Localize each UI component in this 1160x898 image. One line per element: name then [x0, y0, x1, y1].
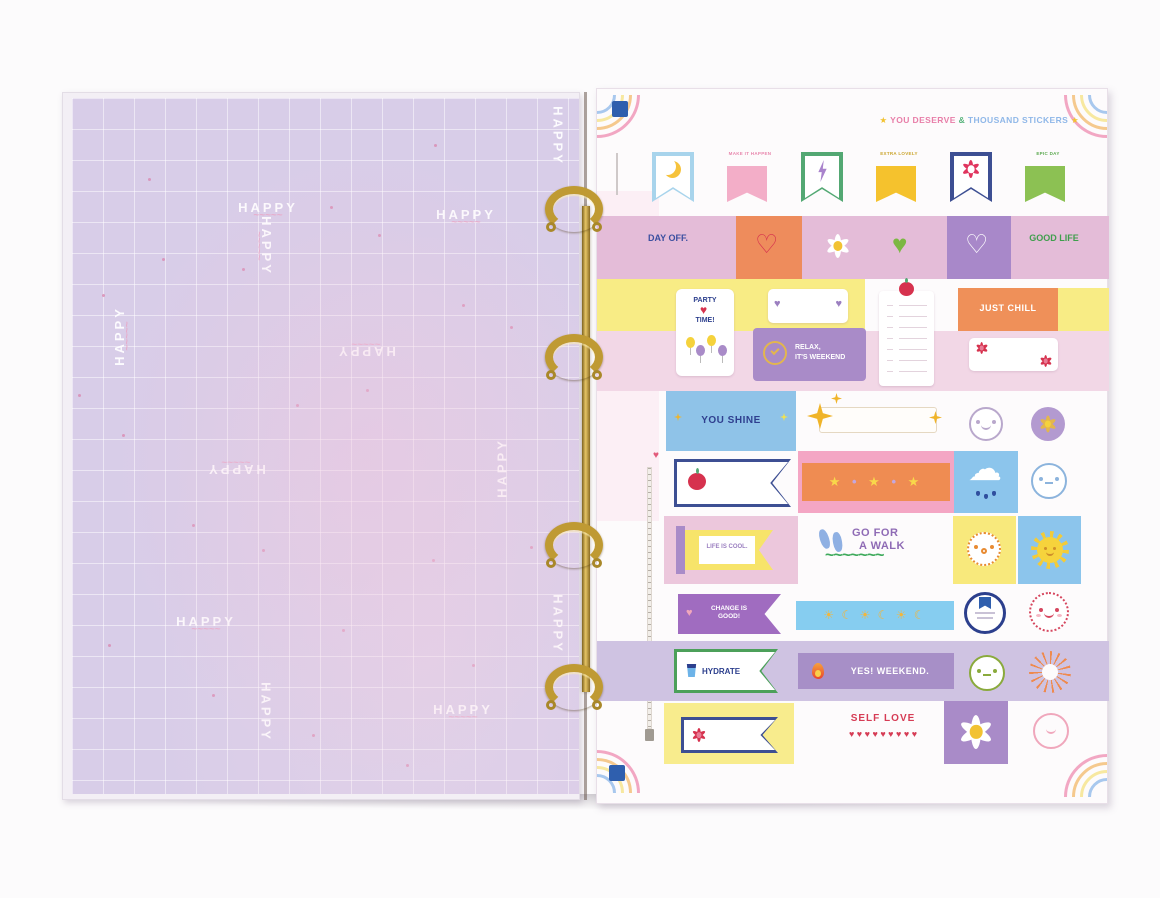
- label-box: LIFE IS COOL.: [699, 536, 755, 564]
- happy-word: HAPPY~~~~~: [113, 306, 131, 366]
- orange-square-sticker: ♡: [736, 216, 802, 279]
- purple-flower-circle-sticker: [1031, 407, 1065, 441]
- flag-sticker-lightning: [801, 152, 843, 202]
- heart-icon: ♥: [700, 304, 707, 316]
- small-heart-icon: ♥: [653, 451, 659, 461]
- dot-icon: •: [852, 474, 861, 489]
- happy-word: HAPPY~~~~~: [433, 703, 493, 721]
- todo-checkboxes: [887, 305, 893, 379]
- row2-band: [597, 216, 1109, 279]
- happy-word: HAPPY~~~~~: [238, 201, 298, 219]
- go-for-a-walk-text: GO FOR: [852, 527, 898, 539]
- you-shine-sticker: YOU SHINE: [666, 391, 796, 451]
- rainbow-corner-bottom-right-icon: [1053, 743, 1107, 797]
- todo-list-sticker: [879, 291, 934, 386]
- green-wave-icon: ~~~~~~~: [825, 547, 883, 565]
- surprised-smiley-icon: [967, 532, 1001, 566]
- pink-dot: [102, 294, 105, 297]
- pink-dot: [406, 764, 409, 767]
- binder-ring: [545, 186, 603, 232]
- gold-flower-icon: [1040, 415, 1055, 432]
- balloon-icon: [707, 335, 716, 346]
- self-love-text: SELF LOVE: [823, 713, 943, 724]
- flag-sticker-flower: [950, 152, 992, 202]
- heart-outline-icon: ♡: [965, 231, 988, 257]
- starburst-icon: [1029, 651, 1071, 693]
- wavy-underline: ~~~~~: [436, 220, 496, 226]
- happy-word: HAPPY: [496, 438, 509, 498]
- pink-dot: [192, 524, 195, 527]
- daisy-icon: [961, 715, 991, 749]
- life-is-cool-flag-sticker: LIFE IS COOL.: [685, 530, 773, 570]
- flag-sticker-yellow: [876, 166, 916, 202]
- happy-word: HAPPY: [552, 594, 565, 654]
- pink-dot: [432, 559, 435, 562]
- balloon-icon: [718, 345, 727, 356]
- dot-icon: •: [891, 474, 900, 489]
- flower-label-sticker: [969, 338, 1058, 371]
- flag-sticker-pink: [727, 166, 767, 202]
- wavy-underline: ~~~~~: [336, 340, 396, 346]
- flag-label: EXTRA LOVELY: [869, 151, 929, 156]
- day-off-sticker: DAY OFF.: [645, 233, 691, 243]
- row9-yellow-square: [664, 703, 794, 764]
- yes-weekend-sticker: YES! WEEKEND.: [798, 653, 954, 689]
- pink-dot: [148, 178, 151, 181]
- pink-smile-circle-sticker: [1033, 713, 1069, 749]
- pink-dot: [472, 664, 475, 667]
- balloon-icon: [686, 337, 695, 348]
- just-chill-sticker: JUST CHILL: [958, 288, 1058, 331]
- yellow-block: [1058, 288, 1109, 331]
- pink-dot: [162, 258, 165, 261]
- wavy-underline: ~~~~~: [206, 458, 266, 464]
- purple-bar: [676, 526, 685, 574]
- registration-square-top-icon: [612, 101, 628, 117]
- balloon-icon: [696, 345, 705, 356]
- daisy-icon: [827, 234, 849, 258]
- happy-word: HAPPY~~~~~: [176, 615, 236, 633]
- heart-label-sticker: ♥ ♥: [768, 289, 848, 323]
- flag-sticker-green: [1025, 166, 1065, 202]
- pink-dot: [78, 394, 81, 397]
- cloud-icon: ☁: [968, 455, 1002, 483]
- pink-dot: [378, 234, 381, 237]
- mini-flag-icon: [979, 597, 991, 609]
- binder-ring: [545, 664, 603, 710]
- badge-circle-sticker: [964, 592, 1006, 634]
- gold-spine-bar: [582, 206, 590, 692]
- heart-icon: ♥: [686, 608, 693, 619]
- happy-word: HAPPY~~~~~: [255, 216, 273, 276]
- gold-circle-check-icon: [763, 341, 787, 365]
- heart-icon: ♥: [835, 299, 842, 310]
- pink-dot: [366, 389, 369, 392]
- relax-weekend-sticker: RELAX, IT'S WEEKEND: [753, 328, 866, 381]
- heart-icon: ♥: [774, 299, 781, 310]
- pink-dot: [312, 734, 315, 737]
- smiley-sticker: [969, 407, 1003, 441]
- sparkle-label-sticker: [819, 407, 937, 433]
- pink-dot: [342, 629, 345, 632]
- star-dot-pattern: ★ • ★ • ★: [802, 474, 950, 490]
- pink-dot: [212, 694, 215, 697]
- pink-dot: [510, 326, 513, 329]
- sun-icon: [1031, 531, 1069, 569]
- sheet-header: ★ YOU DESERVE & THOUSAND STICKERS ★: [880, 115, 1079, 126]
- flag-sticker-moon: [652, 152, 694, 202]
- sun-moon-pattern: ☀ ☾ ☀ ☾ ☀ ☾: [796, 608, 954, 622]
- rain-cloud-sticker: ☁: [954, 451, 1018, 513]
- apple-icon: [899, 282, 914, 296]
- party-time-sticker: PARTY ♥ TIME!: [676, 289, 734, 376]
- sleepy-smiley-sticker: [1031, 463, 1067, 499]
- binder-ring: [545, 522, 603, 568]
- pink-dot: [262, 549, 265, 552]
- flower-icon: [963, 160, 979, 178]
- hydrate-sticker: HYDRATE: [674, 649, 778, 693]
- registration-square-bottom-icon: [609, 765, 625, 781]
- pink-dot: [296, 404, 299, 407]
- happy-word: HAPPY: [552, 106, 565, 166]
- flower-icon: [976, 342, 987, 354]
- left-grid-page: HAPPY~~~~~HAPPYHAPPY~~~~~HAPPY~~~~~HAPPY…: [62, 92, 580, 800]
- sun-moon-strip-sticker: ☀ ☾ ☀ ☾ ☀ ☾: [796, 601, 954, 630]
- happy-word: HAPPY~~~~~: [436, 208, 496, 226]
- lilac-grid-pattern: HAPPY~~~~~HAPPYHAPPY~~~~~HAPPY~~~~~HAPPY…: [72, 98, 579, 794]
- wavy-underline: ~~~~~: [125, 306, 131, 366]
- dot-icon: [900, 474, 908, 489]
- wavy-underline: ~~~~~: [238, 213, 298, 219]
- calm-smiley-sticker: [969, 655, 1005, 691]
- binder-ring: [545, 334, 603, 380]
- todo-lines: [899, 305, 927, 379]
- happy-smiley-sticker: [1029, 592, 1069, 632]
- flower-icon: [693, 728, 705, 742]
- apple-flag-sticker: [674, 459, 791, 507]
- flower-flag-sticker: [681, 717, 778, 753]
- pink-dot: [242, 268, 245, 271]
- green-heart-icon: ♥: [892, 231, 907, 257]
- wavy-underline: ~~~~~: [255, 216, 261, 276]
- star-icon: ★: [880, 115, 888, 125]
- wavy-underline: ~~~~~: [176, 627, 236, 633]
- hearts-row: ♥ ♥ ♥ ♥ ♥ ♥ ♥ ♥ ♥: [819, 729, 947, 739]
- happy-word: HAPPY: [260, 682, 273, 742]
- apple-icon: [688, 473, 706, 490]
- row6-pink-block: LIFE IS COOL.: [664, 516, 798, 584]
- pink-dot: [530, 546, 533, 549]
- blue-sun-square: [1018, 516, 1081, 584]
- dot-icon: [844, 474, 852, 489]
- pink-dot: [434, 144, 437, 147]
- good-life-sticker: GOOD LIFE: [1029, 233, 1079, 243]
- flag-label: EPIC DAY: [1018, 151, 1078, 156]
- heart-outline-icon: ♡: [755, 231, 778, 257]
- sticker-sheet-page: ★ YOU DESERVE & THOUSAND STICKERS ★ MAKE…: [596, 88, 1108, 804]
- flower-icon: [1040, 355, 1051, 367]
- pink-dot: [122, 434, 125, 437]
- flag-label: MAKE IT HAPPEN: [720, 151, 780, 156]
- binder-photo: HAPPY~~~~~HAPPYHAPPY~~~~~HAPPY~~~~~HAPPY…: [0, 0, 1160, 898]
- star-icon: ★: [908, 474, 924, 489]
- flame-icon: [812, 663, 824, 679]
- star-icon: ★: [829, 474, 845, 489]
- divider-tick: [616, 153, 618, 195]
- star-icon: ★: [868, 474, 884, 489]
- pink-strip-sticker: ★ • ★ • ★: [798, 451, 954, 513]
- moon-icon: [664, 161, 681, 178]
- star-strip: ★ • ★ • ★: [802, 463, 950, 501]
- happy-word: HAPPY~~~~~: [206, 458, 266, 476]
- pink-dot: [462, 304, 465, 307]
- wavy-underline: ~~~~~: [433, 715, 493, 721]
- pink-dot: [330, 206, 333, 209]
- star-icon: ★: [1071, 115, 1079, 125]
- ruler-end: [645, 729, 654, 741]
- sparkle-icon: [831, 393, 842, 404]
- raindrops-icon: [976, 491, 980, 496]
- happy-word: HAPPY~~~~~: [336, 340, 396, 358]
- purple-daisy-square: [944, 701, 1008, 764]
- purple-square-sticker: ♡: [947, 216, 1011, 279]
- change-is-good-sticker: ♥ CHANGE IS GOOD!: [678, 594, 781, 634]
- pink-dot: [108, 644, 111, 647]
- yellow-smiley-square: [953, 516, 1016, 584]
